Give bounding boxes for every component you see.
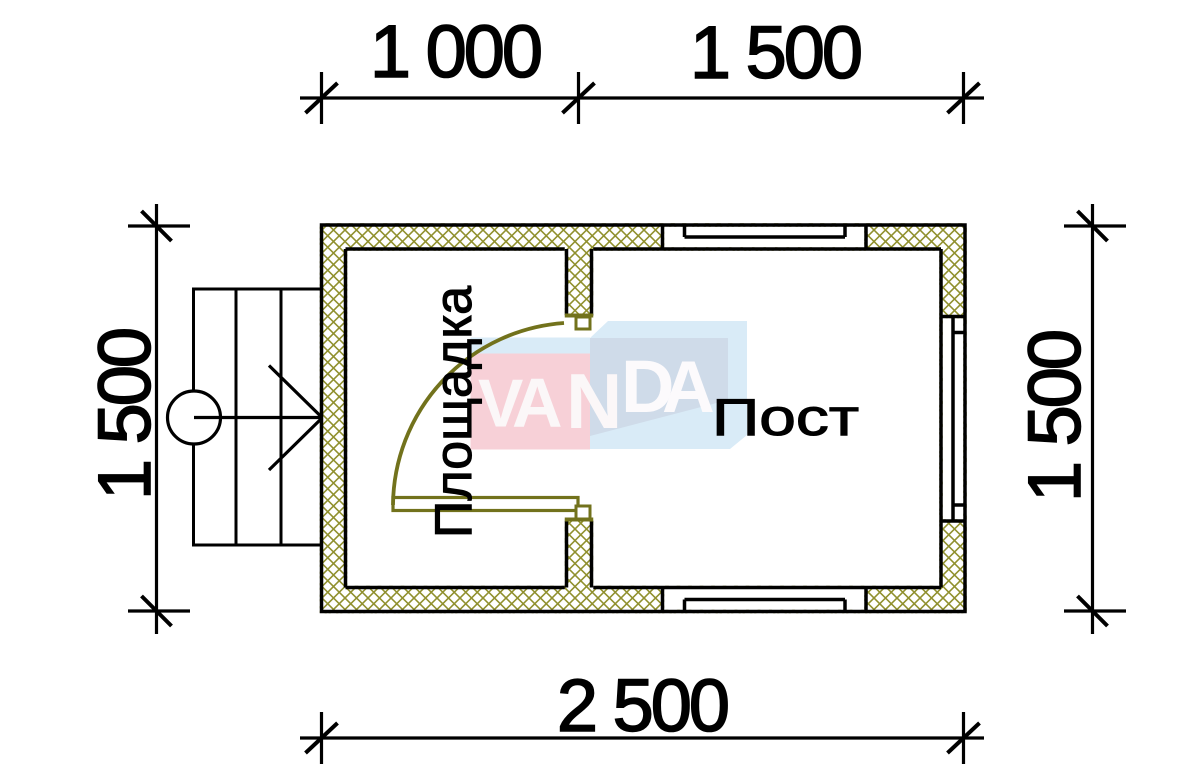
- svg-text:Площадка: Площадка: [425, 286, 483, 538]
- svg-text:1 000: 1 000: [370, 10, 541, 93]
- svg-text:1 500: 1 500: [1013, 331, 1096, 502]
- svg-text:1 500: 1 500: [83, 329, 166, 500]
- svg-text:1 500: 1 500: [690, 11, 861, 94]
- svg-text:A: A: [512, 364, 563, 442]
- svg-text:2 500: 2 500: [557, 664, 728, 747]
- svg-text:N: N: [566, 357, 622, 445]
- svg-text:A: A: [662, 347, 715, 428]
- svg-text:Пост: Пост: [712, 389, 859, 447]
